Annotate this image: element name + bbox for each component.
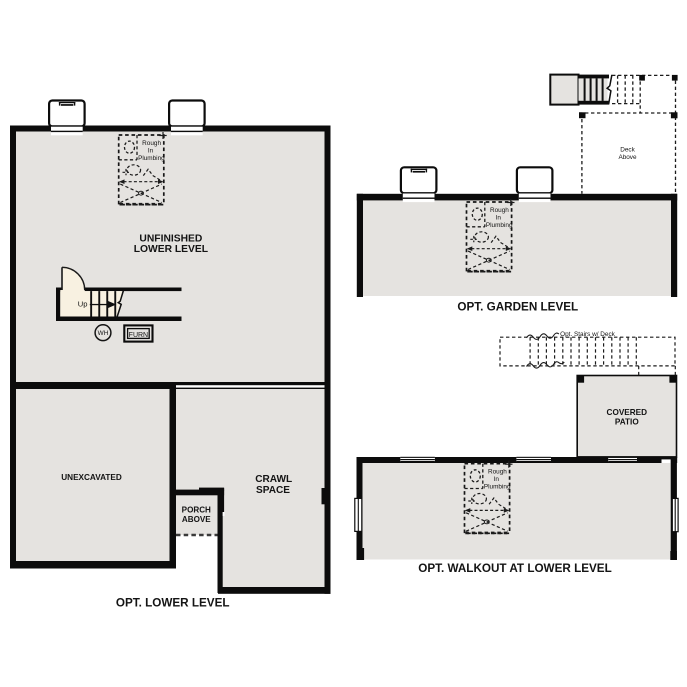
svg-text:FURN: FURN [129,332,148,339]
svg-text:COVERED: COVERED [607,408,648,417]
svg-text:OPT. LOWER LEVEL: OPT. LOWER LEVEL [116,597,230,610]
svg-text:PORCH: PORCH [182,505,211,514]
svg-text:CRAWL: CRAWL [255,474,292,485]
svg-text:Up: Up [78,300,88,309]
svg-text:LOWER LEVEL: LOWER LEVEL [134,244,208,255]
svg-text:WH: WH [98,330,109,337]
svg-text:Above: Above [618,154,637,161]
svg-text:PATIO: PATIO [615,417,639,426]
svg-text:ABOVE: ABOVE [182,515,211,524]
svg-text:OPT. WALKOUT AT LOWER LEVEL: OPT. WALKOUT AT LOWER LEVEL [418,562,611,575]
svg-text:UNEXCAVATED: UNEXCAVATED [61,473,122,482]
svg-text:SPACE: SPACE [256,485,290,496]
svg-text:Deck: Deck [620,146,635,153]
svg-text:OPT. GARDEN LEVEL: OPT. GARDEN LEVEL [457,301,578,314]
